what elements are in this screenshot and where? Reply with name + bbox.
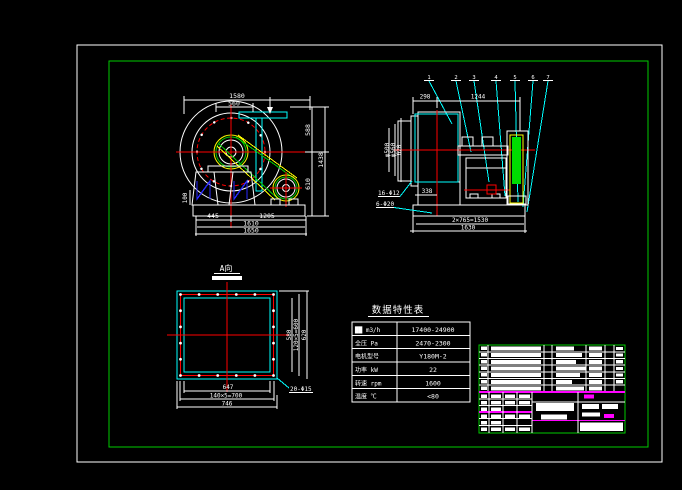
dim-a-height-bolt: 120×5=600: [293, 318, 300, 351]
dim-side-bottom-spacing: 2×765=1530: [452, 217, 489, 224]
dim-right-total: 1438: [317, 152, 325, 168]
cad-drawing: 1580 560 588 610 1438 100 445 1205 1610: [0, 0, 682, 490]
spec-row-6-value: <80: [427, 393, 439, 401]
dim-right-upper: 588: [304, 124, 312, 136]
callout-flange-holes: 20-Φ15: [290, 386, 312, 393]
dim-right-lower: 610: [304, 178, 312, 190]
dim-foot-height: 100: [182, 192, 189, 203]
spec-row-3-label: 电机型号: [355, 353, 379, 361]
dim-a-width-bolt: 140×5=700: [210, 393, 243, 400]
callout-base-holes: 6-Φ20: [376, 201, 394, 208]
spec-row-3-value: Y180M-2: [419, 353, 446, 361]
dim-inlet-outer: 620: [396, 144, 403, 155]
a-view-dimensions: 647 140×5=700 746 580 120×5=600 620 20-Φ…: [177, 291, 313, 409]
support-legs: [192, 166, 298, 205]
belt-drive: [217, 135, 297, 200]
spec-row-4-label: 功率 kW: [355, 366, 378, 374]
a-view-label: A向: [220, 263, 233, 273]
spec-row-2-label: 全压 Pa: [355, 339, 378, 347]
spec-row-5-label: 转速 rpm: [355, 379, 382, 387]
dim-side-foot: 338: [422, 188, 433, 195]
dim-a-height-inner: 580: [286, 329, 293, 340]
callout-inlet-holes: 16-Φ12: [378, 190, 400, 197]
dim-bottom-total: 1650: [243, 227, 259, 235]
spec-row-4-value: 22: [429, 366, 437, 374]
side-view: 1 2 3 4 5 6 7: [376, 75, 553, 233]
spec-row-5-value: 1600: [425, 379, 441, 387]
dim-side-bottom-total: 1630: [461, 225, 476, 232]
title-block: [479, 345, 625, 433]
dim-a-height-outer: 620: [301, 329, 308, 340]
drawing-title-blocks: [536, 403, 574, 420]
spec-row-6-label: 温度 ℃: [355, 393, 377, 401]
dim-side-top-width: 1244: [471, 94, 486, 101]
spec-row-2-value: 2470-2300: [415, 339, 450, 347]
spec-table-title: 数据特性表: [372, 304, 425, 316]
spec-row-1-value: 17400-24900: [411, 326, 454, 334]
dim-side-top-left: 298: [420, 94, 431, 101]
front-view: 1580 560 588 610 1438 100 445 1205 1610: [176, 92, 329, 236]
dim-outlet-offset: 560: [228, 100, 240, 108]
cad-canvas[interactable]: 1580 560 588 610 1438 100 445 1205 1610: [0, 0, 682, 490]
item-balloons: 1 2 3 4 5 6 7: [424, 75, 553, 212]
dim-a-width-inner: 647: [223, 384, 234, 391]
spec-table: 数据特性表 ██ m3/h 17400-24900 全压 Pa 2470-230…: [352, 304, 470, 402]
a-view-arrow-bar: [212, 276, 242, 280]
spec-row-1-label: ██ m3/h: [354, 326, 381, 334]
dim-bottom-left: 445: [207, 212, 219, 220]
a-view: A向 647 140×5=700 746: [167, 263, 313, 409]
dim-a-width-outer: 746: [222, 401, 233, 408]
base-frame-side: [413, 205, 525, 216]
dim-bottom-mid: 1205: [259, 212, 275, 220]
